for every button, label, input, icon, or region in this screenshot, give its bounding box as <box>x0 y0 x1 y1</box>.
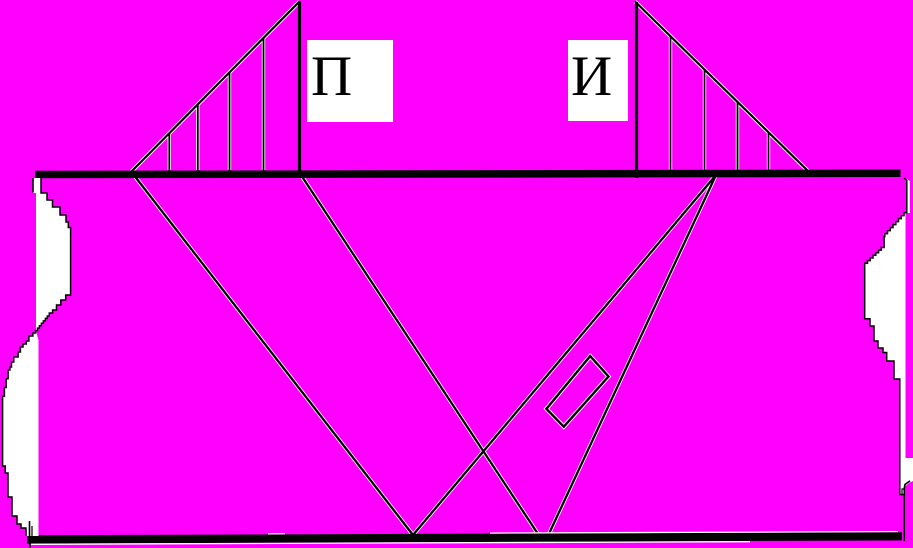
svg-text:И: И <box>571 45 612 108</box>
svg-text:П: П <box>311 45 352 108</box>
